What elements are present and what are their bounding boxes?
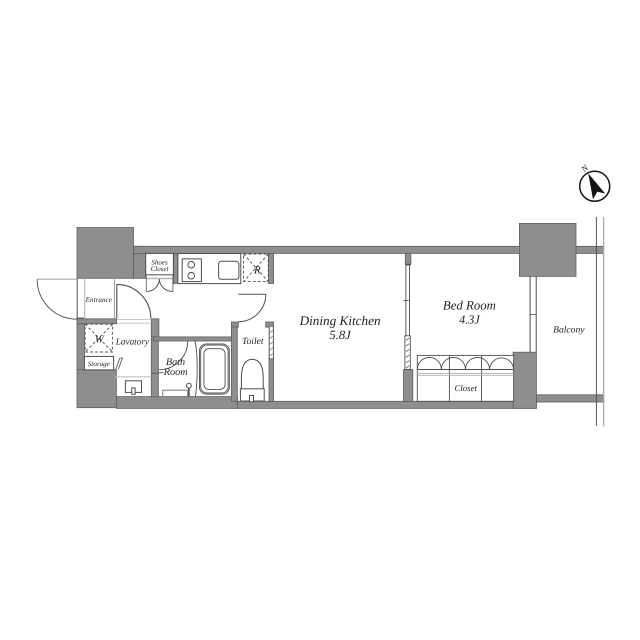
svg-text:W: W — [95, 334, 105, 345]
svg-text:Bed Room: Bed Room — [443, 298, 496, 312]
svg-text:5.8J: 5.8J — [329, 328, 352, 342]
svg-text:R: R — [253, 264, 261, 276]
svg-text:Balcony: Balcony — [553, 324, 585, 335]
svg-text:Entrance: Entrance — [85, 296, 113, 304]
svg-text:Closet: Closet — [454, 383, 477, 393]
svg-text:4.3J: 4.3J — [459, 313, 480, 327]
svg-text:Toilet: Toilet — [242, 336, 264, 347]
svg-text:Closet: Closet — [151, 265, 170, 273]
svg-text:Dining Kitchen: Dining Kitchen — [299, 313, 381, 328]
svg-text:Lavatory: Lavatory — [115, 337, 150, 347]
svg-text:Storage: Storage — [88, 360, 110, 368]
